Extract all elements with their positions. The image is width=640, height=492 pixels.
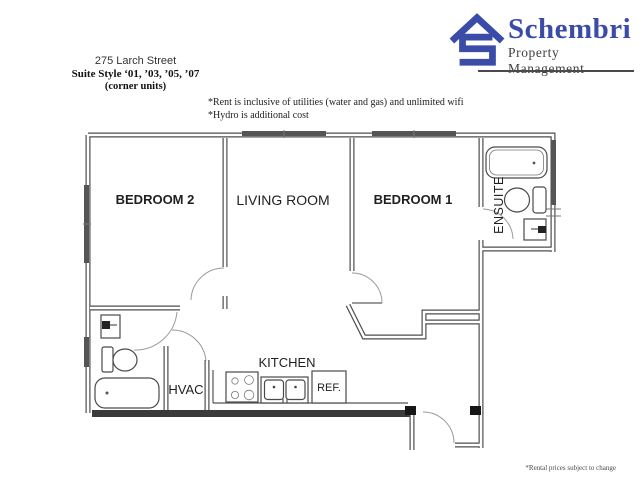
toilet-icon	[505, 188, 530, 212]
bathroom-toilet-icon	[102, 347, 113, 372]
bottom-wall	[92, 410, 411, 417]
bathroom-tub-icon	[95, 378, 159, 408]
door-swings	[134, 209, 513, 443]
kitchen-label: KITCHEN	[258, 355, 315, 370]
bathroom-fixtures	[95, 315, 159, 408]
entry-door-stop-left	[405, 406, 416, 415]
price-disclaimer: *Rental prices subject to change	[525, 464, 616, 472]
bedroom1-label: BEDROOM 1	[374, 192, 453, 207]
floorplan-page: 275 Larch Street Suite Style ‘01, ’03, ’…	[0, 0, 640, 492]
fridge-label: REF.	[317, 382, 341, 394]
floor-plan: BEDROOM 2 LIVING ROOM BEDROOM 1 ENSUITE …	[0, 0, 640, 492]
living-room-label: LIVING ROOM	[236, 192, 329, 208]
entry-door-arc	[423, 412, 454, 443]
room-labels: BEDROOM 2 LIVING ROOM BEDROOM 1 ENSUITE …	[116, 176, 506, 397]
ensuite-label: ENSUITE	[492, 176, 506, 234]
entry-door-stop-right	[470, 406, 481, 415]
hvac-door-arc	[172, 330, 206, 361]
bedroom2-door-arc	[191, 268, 224, 300]
hvac-label: HVAC	[168, 382, 203, 397]
bathroom-door-arc	[134, 312, 177, 350]
bathtub-icon	[486, 147, 547, 178]
bedroom2-label: BEDROOM 2	[116, 192, 195, 207]
bedroom1-door-arc	[352, 273, 382, 303]
